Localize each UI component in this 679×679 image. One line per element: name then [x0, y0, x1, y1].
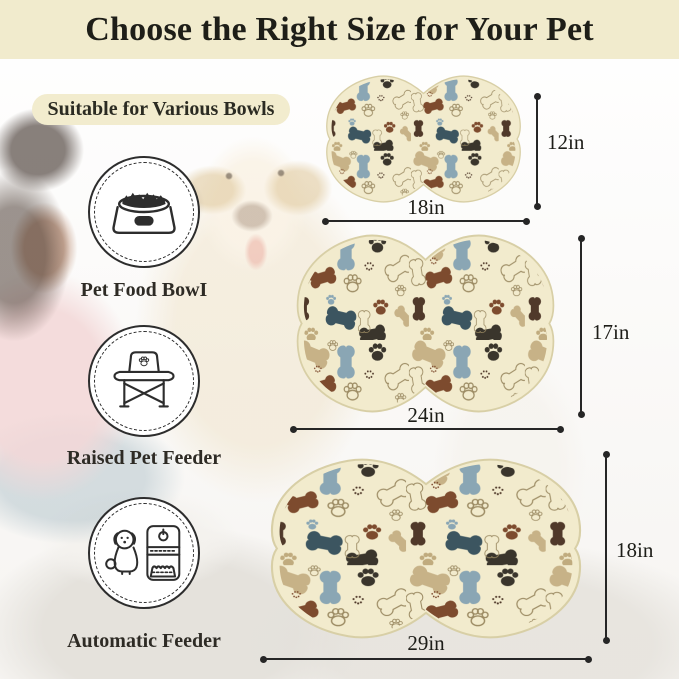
dim-medium-height-label: 17in — [592, 320, 629, 345]
dim-large-width-line — [262, 658, 590, 660]
page-title: Choose the Right Size for Your Pet — [85, 11, 594, 49]
title-banner: Choose the Right Size for Your Pet — [0, 0, 679, 59]
dim-small-height-label: 12in — [547, 130, 584, 155]
dim-small-width-line — [324, 220, 528, 222]
dim-small-width-label: 18in — [407, 195, 444, 220]
feeder-label-raised-pet-feeder: Raised Pet Feeder — [24, 447, 264, 470]
dim-medium-width-label: 24in — [407, 403, 444, 428]
infographic-root: 12in 18in 17in 24in 18in 29in Choose the… — [0, 0, 679, 679]
dim-medium-width-line — [292, 428, 562, 430]
dim-large-height-line — [605, 453, 607, 642]
pet-food-bowl-icon — [104, 182, 184, 242]
feeder-item-raised-pet-feeder — [88, 325, 200, 437]
automatic-feeder-icon — [102, 521, 186, 585]
dim-small-height-line — [536, 95, 538, 208]
mat-small — [318, 70, 529, 208]
bowls-badge: Suitable for Various Bowls — [32, 94, 290, 125]
mat-medium — [286, 227, 565, 420]
dim-large-width-label: 29in — [407, 631, 444, 656]
mat-large — [258, 451, 594, 646]
feeder-label-pet-food-bowl: Pet Food BowI — [24, 279, 264, 302]
feeder-item-pet-food-bowl — [88, 156, 200, 268]
feeder-item-automatic-feeder — [88, 497, 200, 609]
raised-pet-feeder-icon — [103, 347, 185, 415]
dim-medium-height-line — [580, 237, 582, 416]
dim-large-height-label: 18in — [616, 538, 653, 563]
feeder-label-automatic-feeder: Automatic Feeder — [24, 630, 264, 653]
